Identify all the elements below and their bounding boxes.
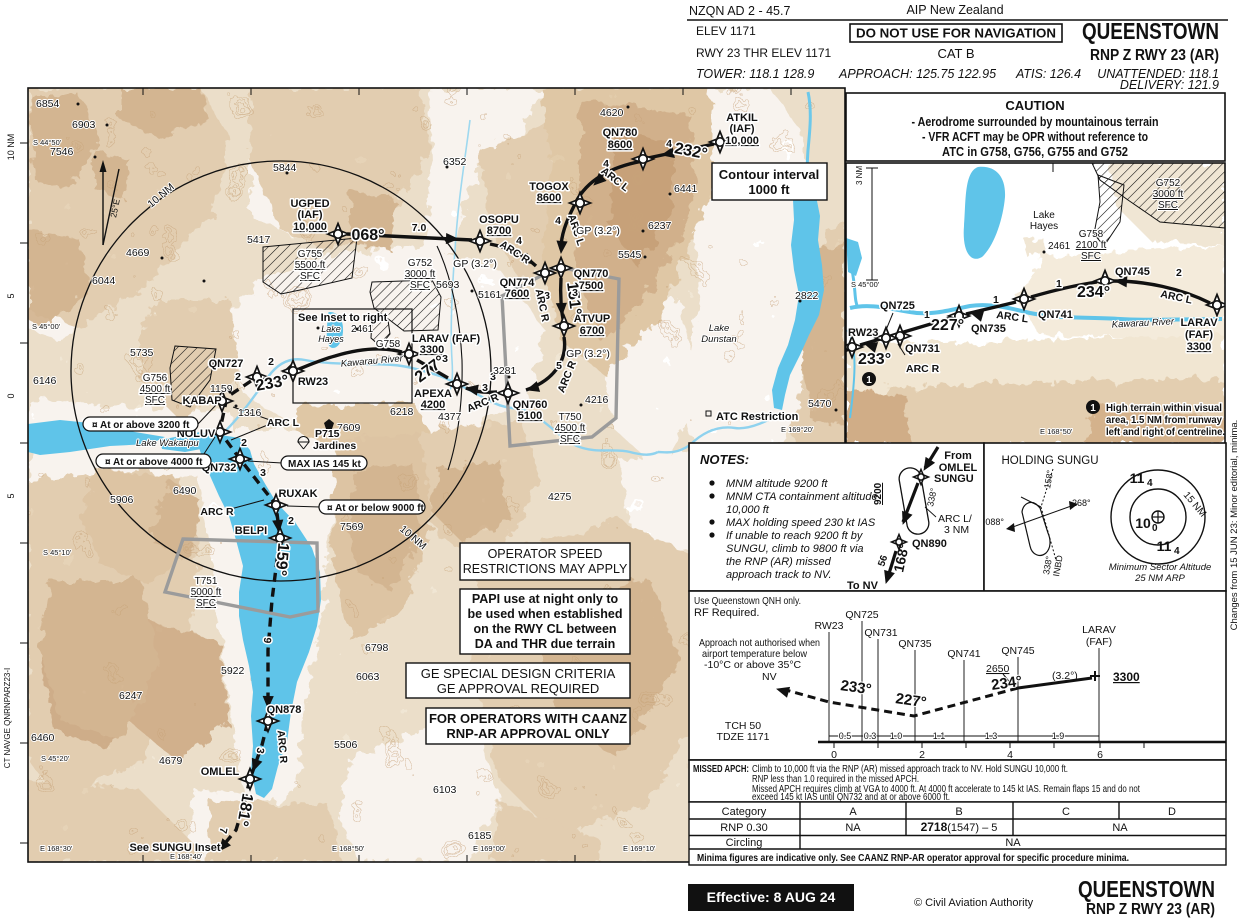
svg-text:SFC: SFC bbox=[145, 395, 165, 406]
svg-text:Effective: 8 AUG 24: Effective: 8 AUG 24 bbox=[707, 889, 836, 905]
svg-text:SFC: SFC bbox=[196, 598, 216, 609]
svg-text:5922: 5922 bbox=[221, 665, 245, 677]
svg-text:NA: NA bbox=[1112, 822, 1128, 834]
svg-text:High terrain within visual: High terrain within visual bbox=[1106, 403, 1222, 414]
svg-text:3: 3 bbox=[482, 382, 488, 394]
svg-text:(FAF): (FAF) bbox=[1086, 636, 1112, 648]
svg-text:NA: NA bbox=[845, 822, 861, 834]
svg-text:¤ At or above 3200 ft: ¤ At or above 3200 ft bbox=[92, 420, 190, 431]
svg-text:ARC R: ARC R bbox=[906, 363, 940, 375]
svg-text:6441: 6441 bbox=[674, 183, 698, 195]
svg-text:SFC: SFC bbox=[300, 271, 320, 282]
svg-text:ATVUP: ATVUP bbox=[574, 313, 610, 325]
svg-text:5470: 5470 bbox=[808, 398, 832, 410]
svg-text:E 169°20': E 169°20' bbox=[781, 425, 814, 434]
svg-text:QN735: QN735 bbox=[898, 638, 931, 650]
svg-text:ARC R: ARC R bbox=[200, 506, 234, 518]
svg-text:E 169°00': E 169°00' bbox=[473, 844, 506, 853]
svg-text:2461: 2461 bbox=[1048, 241, 1071, 252]
svg-text:234°: 234° bbox=[1077, 284, 1110, 301]
svg-text:1: 1 bbox=[1056, 278, 1062, 290]
svg-text:on the RWY CL between: on the RWY CL between bbox=[473, 622, 616, 636]
svg-text:RW23: RW23 bbox=[298, 376, 328, 388]
svg-text:227°: 227° bbox=[931, 317, 964, 334]
svg-text:6490: 6490 bbox=[173, 485, 197, 497]
svg-text:2: 2 bbox=[1176, 267, 1182, 279]
svg-text:6700: 6700 bbox=[580, 325, 604, 337]
svg-text:5417: 5417 bbox=[247, 234, 271, 246]
svg-text:QN745: QN745 bbox=[1001, 645, 1034, 657]
svg-text:GP (3.2°): GP (3.2°) bbox=[453, 258, 497, 270]
svg-text:Minima figures are indicative: Minima figures are indicative only. See … bbox=[697, 852, 1129, 864]
svg-text:MAX holding speed 230 kt IAS: MAX holding speed 230 kt IAS bbox=[726, 517, 876, 529]
svg-text:D: D bbox=[1168, 806, 1176, 818]
svg-text:6218: 6218 bbox=[390, 406, 414, 418]
svg-text:QN741: QN741 bbox=[1038, 309, 1073, 321]
svg-text:QN725: QN725 bbox=[880, 300, 915, 312]
svg-text:7600: 7600 bbox=[505, 288, 529, 300]
svg-text:P715: P715 bbox=[315, 428, 340, 440]
svg-text:1: 1 bbox=[1090, 403, 1096, 414]
svg-text:be used when established: be used when established bbox=[468, 607, 623, 621]
svg-text:1.1: 1.1 bbox=[933, 731, 946, 741]
svg-text:4500 ft: 4500 ft bbox=[140, 384, 171, 395]
svg-text:Lake: Lake bbox=[1033, 210, 1055, 221]
svg-text:T750: T750 bbox=[559, 412, 582, 423]
svg-text:SFC: SFC bbox=[410, 280, 430, 291]
svg-text:7.0: 7.0 bbox=[412, 222, 427, 234]
svg-text:the RNP (AR) missed: the RNP (AR) missed bbox=[726, 556, 832, 568]
svg-text:LARAV: LARAV bbox=[1180, 317, 1218, 329]
svg-text:8600: 8600 bbox=[537, 192, 561, 204]
svg-text:RF Required.: RF Required. bbox=[694, 607, 759, 619]
svg-text:approach track to NV.: approach track to NV. bbox=[726, 569, 832, 581]
svg-text:10 NM: 10 NM bbox=[6, 134, 16, 161]
svg-text:4275: 4275 bbox=[548, 491, 572, 503]
svg-text:ELEV 1171: ELEV 1171 bbox=[696, 24, 756, 38]
svg-text:1000 ft: 1000 ft bbox=[748, 182, 790, 197]
svg-text:GP (3.2°): GP (3.2°) bbox=[566, 348, 610, 360]
svg-text:AIP New Zealand: AIP New Zealand bbox=[906, 3, 1003, 17]
svg-text:5161: 5161 bbox=[478, 289, 502, 301]
svg-text:G758: G758 bbox=[1079, 229, 1104, 240]
svg-text:6185: 6185 bbox=[468, 830, 492, 842]
svg-text:6460: 6460 bbox=[31, 732, 55, 744]
svg-text:QN878: QN878 bbox=[267, 704, 302, 716]
svg-text:(3.2°): (3.2°) bbox=[1052, 670, 1078, 682]
svg-text:NV: NV bbox=[762, 671, 777, 683]
svg-text:MISSED APCH:: MISSED APCH: bbox=[693, 763, 749, 775]
svg-text:2461: 2461 bbox=[351, 324, 374, 335]
svg-text:SFC: SFC bbox=[560, 434, 580, 445]
svg-text:Hayes: Hayes bbox=[318, 334, 344, 344]
svg-text:10: 10 bbox=[1135, 515, 1151, 531]
svg-text:5000 ft: 5000 ft bbox=[191, 587, 222, 598]
svg-text:7546: 7546 bbox=[50, 146, 74, 158]
svg-text:RNP Z RWY 23 (AR): RNP Z RWY 23 (AR) bbox=[1086, 901, 1215, 918]
svg-text:10,000: 10,000 bbox=[725, 135, 759, 147]
svg-text:9: 9 bbox=[261, 637, 273, 644]
svg-text:(IAF): (IAF) bbox=[729, 123, 754, 135]
svg-text:4: 4 bbox=[1147, 478, 1153, 489]
svg-text:G755: G755 bbox=[298, 249, 323, 260]
svg-text:2100 ft: 2100 ft bbox=[1076, 240, 1107, 251]
svg-text:CAT B: CAT B bbox=[937, 46, 974, 61]
svg-text:QUEENSTOWN: QUEENSTOWN bbox=[1082, 18, 1219, 44]
svg-text:¤ At or below 9000 ft: ¤ At or below 9000 ft bbox=[327, 503, 425, 514]
svg-text:area, 1.5 NM from runway: area, 1.5 NM from runway bbox=[1106, 415, 1222, 426]
svg-text:FOR OPERATORS WITH CAANZ: FOR OPERATORS WITH CAANZ bbox=[429, 711, 627, 726]
svg-text:RESTRICTIONS MAY APPLY: RESTRICTIONS MAY APPLY bbox=[463, 562, 628, 576]
svg-text:Use Queenstown QNH only.: Use Queenstown QNH only. bbox=[694, 595, 801, 607]
svg-text:5500 ft: 5500 ft bbox=[295, 260, 326, 271]
svg-text:T751: T751 bbox=[195, 576, 218, 587]
svg-text:MNM altitude 9200 ft: MNM altitude 9200 ft bbox=[726, 478, 828, 490]
svg-text:MNM CTA containment altitude: MNM CTA containment altitude bbox=[726, 491, 878, 503]
svg-text:HOLDING SUNGU: HOLDING SUNGU bbox=[1001, 455, 1098, 467]
svg-text:1: 1 bbox=[993, 294, 999, 306]
svg-text:© Civil Aviation Authority: © Civil Aviation Authority bbox=[914, 897, 1034, 909]
svg-text:11: 11 bbox=[1130, 470, 1145, 486]
svg-text:RUXAK: RUXAK bbox=[278, 488, 317, 500]
svg-text:5693: 5693 bbox=[436, 279, 460, 291]
svg-text:4216: 4216 bbox=[585, 394, 609, 406]
svg-text:2718(1547) – 5: 2718(1547) – 5 bbox=[921, 820, 998, 834]
svg-text:Circling: Circling bbox=[726, 837, 763, 849]
svg-text:4: 4 bbox=[666, 138, 672, 150]
svg-text:From: From bbox=[944, 450, 972, 462]
svg-text:3281: 3281 bbox=[493, 365, 517, 377]
svg-text:0.5: 0.5 bbox=[839, 731, 852, 741]
svg-text:E 168°50': E 168°50' bbox=[1040, 427, 1073, 436]
svg-text:CT NAVGE QNRNPARZ23-I: CT NAVGE QNRNPARZ23-I bbox=[3, 668, 12, 768]
svg-text:6798: 6798 bbox=[365, 642, 389, 654]
svg-text:-10°C or above 35°C: -10°C or above 35°C bbox=[704, 659, 802, 671]
svg-text:Lake Wakatipu: Lake Wakatipu bbox=[136, 438, 199, 449]
svg-text:GP (3.2°): GP (3.2°) bbox=[576, 225, 620, 237]
svg-text:QN780: QN780 bbox=[603, 127, 638, 139]
svg-text:NA: NA bbox=[1005, 837, 1021, 849]
svg-text:DO NOT USE FOR NAVIGATION: DO NOT USE FOR NAVIGATION bbox=[856, 26, 1056, 41]
svg-text:Jardines: Jardines bbox=[313, 440, 356, 452]
svg-text:S 44°50': S 44°50' bbox=[33, 138, 62, 147]
svg-text:4: 4 bbox=[555, 215, 561, 227]
svg-text:4: 4 bbox=[1174, 546, 1180, 557]
svg-text:(FAF): (FAF) bbox=[1185, 329, 1213, 341]
svg-text:5: 5 bbox=[6, 293, 16, 298]
svg-text:Minimum Sector Altitude: Minimum Sector Altitude bbox=[1109, 562, 1212, 573]
svg-text:1.3: 1.3 bbox=[985, 731, 998, 741]
svg-text:QN741: QN741 bbox=[947, 648, 980, 660]
svg-text:Dunstan: Dunstan bbox=[701, 334, 736, 345]
svg-text:3000 ft: 3000 ft bbox=[405, 269, 436, 280]
svg-text:DA and THR due terrain: DA and THR due terrain bbox=[475, 637, 616, 651]
svg-text:3: 3 bbox=[260, 467, 266, 479]
svg-text:TDZE 1171: TDZE 1171 bbox=[717, 731, 770, 743]
svg-text:3: 3 bbox=[572, 287, 578, 299]
svg-text:QN731: QN731 bbox=[864, 627, 897, 639]
svg-text:GE APPROVAL REQUIRED: GE APPROVAL REQUIRED bbox=[437, 681, 600, 696]
svg-text:ATC Restriction: ATC Restriction bbox=[716, 411, 799, 423]
svg-text:Lake: Lake bbox=[709, 323, 730, 334]
svg-text:LARAV: LARAV bbox=[1082, 624, 1116, 636]
svg-text:ATIS: 126.4: ATIS: 126.4 bbox=[1015, 67, 1081, 81]
svg-text:QN725: QN725 bbox=[845, 609, 878, 621]
svg-text:S 45°10': S 45°10' bbox=[43, 548, 72, 557]
svg-text:GE SPECIAL DESIGN CRITERIA: GE SPECIAL DESIGN CRITERIA bbox=[421, 666, 616, 681]
svg-text:SUNGU, climb to 9800 ft via: SUNGU, climb to 9800 ft via bbox=[726, 543, 864, 555]
svg-text:6854: 6854 bbox=[36, 98, 60, 110]
svg-text:6247: 6247 bbox=[119, 690, 143, 702]
svg-text:RW23: RW23 bbox=[848, 327, 878, 339]
svg-text:4500 ft: 4500 ft bbox=[555, 423, 586, 434]
svg-text:E 168°50': E 168°50' bbox=[332, 844, 365, 853]
svg-text:0: 0 bbox=[1152, 523, 1158, 534]
svg-text:ARC L: ARC L bbox=[267, 417, 300, 429]
svg-text:4679: 4679 bbox=[159, 755, 183, 767]
svg-text:0.3: 0.3 bbox=[864, 731, 877, 741]
svg-text:SUNGU: SUNGU bbox=[934, 473, 974, 485]
svg-text:1.9: 1.9 bbox=[1052, 731, 1065, 741]
svg-text:If unable to reach 9200 ft by: If unable to reach 9200 ft by bbox=[726, 530, 864, 542]
svg-text:2: 2 bbox=[288, 515, 294, 527]
svg-text:- VFR ACFT may be OPR without: - VFR ACFT may be OPR without reference … bbox=[922, 130, 1148, 144]
svg-text:QN745: QN745 bbox=[1115, 266, 1150, 278]
svg-text:3 NM: 3 NM bbox=[855, 166, 864, 185]
svg-text:S 45°20': S 45°20' bbox=[41, 754, 70, 763]
svg-text:8600: 8600 bbox=[608, 139, 632, 151]
svg-text:2: 2 bbox=[235, 371, 241, 383]
svg-text:See Inset to right: See Inset to right bbox=[298, 312, 388, 324]
svg-text:1316: 1316 bbox=[238, 407, 262, 419]
svg-text:Contour interval: Contour interval bbox=[719, 167, 819, 182]
svg-text:SFC: SFC bbox=[1081, 251, 1101, 262]
svg-text:4: 4 bbox=[516, 235, 522, 247]
svg-text:9200: 9200 bbox=[873, 482, 884, 505]
svg-text:4669: 4669 bbox=[126, 247, 150, 259]
svg-text:7609: 7609 bbox=[337, 422, 361, 434]
svg-text:Changes from 15 JUN 23: Minor: Changes from 15 JUN 23: Minor editorial,… bbox=[1229, 420, 1240, 631]
svg-text:11: 11 bbox=[1157, 538, 1172, 554]
svg-text:1: 1 bbox=[924, 309, 930, 321]
svg-text:0: 0 bbox=[6, 393, 16, 398]
svg-text:6146: 6146 bbox=[33, 375, 57, 387]
svg-text:KABAP: KABAP bbox=[182, 395, 221, 407]
svg-text:25 NM ARP: 25 NM ARP bbox=[1134, 573, 1185, 584]
svg-text:E 168°40': E 168°40' bbox=[170, 852, 203, 861]
svg-text:TOWER: 118.1 128.9: TOWER: 118.1 128.9 bbox=[696, 67, 814, 81]
svg-text:G758: G758 bbox=[376, 339, 401, 350]
svg-text:4620: 4620 bbox=[600, 107, 624, 119]
svg-text:5735: 5735 bbox=[130, 347, 154, 359]
svg-text:APPROACH: 125.75 122.95: APPROACH: 125.75 122.95 bbox=[838, 67, 996, 81]
svg-text:6903: 6903 bbox=[72, 119, 96, 131]
svg-text:Hayes: Hayes bbox=[1030, 221, 1058, 232]
svg-text:2: 2 bbox=[241, 437, 247, 449]
svg-text:PAPI use at night only to: PAPI use at night only to bbox=[472, 592, 619, 606]
svg-text:¤ At or above 4000 ft: ¤ At or above 4000 ft bbox=[105, 457, 203, 468]
svg-text:159°: 159° bbox=[272, 542, 292, 576]
svg-text:A: A bbox=[849, 806, 857, 818]
svg-text:QN735: QN735 bbox=[971, 323, 1006, 335]
svg-text:3 NM: 3 NM bbox=[944, 524, 969, 536]
svg-text:3300: 3300 bbox=[1187, 341, 1211, 353]
svg-text:QN770: QN770 bbox=[574, 268, 609, 280]
svg-text:Category: Category bbox=[722, 806, 767, 818]
svg-text:6103: 6103 bbox=[433, 784, 457, 796]
svg-text:6044: 6044 bbox=[92, 275, 116, 287]
svg-text:5506: 5506 bbox=[334, 739, 358, 751]
svg-text:BELPI: BELPI bbox=[235, 525, 267, 537]
svg-text:7500: 7500 bbox=[579, 280, 603, 292]
svg-text:NOTES:: NOTES: bbox=[700, 452, 749, 467]
svg-text:3: 3 bbox=[442, 353, 448, 365]
svg-text:088°: 088° bbox=[985, 517, 1004, 527]
svg-text:DELIVERY: 121.9: DELIVERY: 121.9 bbox=[1120, 78, 1219, 92]
svg-text:233°: 233° bbox=[858, 351, 891, 368]
svg-text:G756: G756 bbox=[143, 373, 168, 384]
svg-text:E 168°30': E 168°30' bbox=[40, 844, 73, 853]
svg-text:RW23: RW23 bbox=[815, 620, 844, 632]
svg-text:MAX IAS 145 kt: MAX IAS 145 kt bbox=[288, 459, 361, 470]
svg-text:10,000: 10,000 bbox=[293, 221, 327, 233]
svg-text:7569: 7569 bbox=[340, 521, 364, 533]
svg-text:QN727: QN727 bbox=[209, 358, 244, 370]
svg-text:RNP Z RWY 23 (AR): RNP Z RWY 23 (AR) bbox=[1090, 47, 1219, 64]
svg-text:S 45°00': S 45°00' bbox=[851, 280, 880, 289]
svg-text:RNP-AR APPROVAL ONLY: RNP-AR APPROVAL ONLY bbox=[446, 726, 610, 741]
svg-text:ATC in G758, G756, G755 and G7: ATC in G758, G756, G755 and G752 bbox=[942, 145, 1128, 159]
svg-text:10,000 ft: 10,000 ft bbox=[726, 504, 770, 516]
svg-text:3300: 3300 bbox=[420, 344, 444, 356]
svg-text:G752: G752 bbox=[408, 258, 433, 269]
svg-text:1: 1 bbox=[866, 375, 872, 386]
svg-text:5100: 5100 bbox=[518, 410, 542, 422]
svg-text:- Aerodrome surrounded by moun: - Aerodrome surrounded by mountainous te… bbox=[912, 115, 1159, 129]
svg-text:2: 2 bbox=[268, 356, 274, 368]
svg-text:5545: 5545 bbox=[618, 249, 642, 261]
svg-text:RWY 23 THR ELEV 1171: RWY 23 THR ELEV 1171 bbox=[696, 46, 832, 60]
svg-text:5906: 5906 bbox=[110, 494, 134, 506]
svg-text:OPERATOR SPEED: OPERATOR SPEED bbox=[488, 547, 603, 561]
svg-text:SFC: SFC bbox=[1158, 200, 1178, 211]
svg-text:5: 5 bbox=[6, 493, 16, 498]
svg-text:268°: 268° bbox=[1072, 498, 1091, 508]
svg-text:G752: G752 bbox=[1156, 178, 1181, 189]
svg-text:068°: 068° bbox=[351, 227, 384, 244]
svg-text:8700: 8700 bbox=[487, 225, 511, 237]
svg-text:6237: 6237 bbox=[648, 220, 672, 232]
svg-text:5: 5 bbox=[556, 360, 562, 372]
svg-text:QN731: QN731 bbox=[905, 343, 940, 355]
svg-text:CAUTION: CAUTION bbox=[1005, 98, 1064, 113]
svg-text:QN890: QN890 bbox=[912, 538, 947, 550]
svg-text:Lake: Lake bbox=[321, 324, 341, 334]
svg-text:4200: 4200 bbox=[421, 399, 445, 411]
svg-text:2822: 2822 bbox=[795, 290, 819, 302]
svg-text:6063: 6063 bbox=[356, 671, 380, 683]
svg-text:left and right of centreline.: left and right of centreline. bbox=[1106, 427, 1225, 438]
svg-text:2650: 2650 bbox=[986, 663, 1010, 675]
svg-text:5844: 5844 bbox=[273, 162, 297, 174]
svg-text:RNP 0.30: RNP 0.30 bbox=[720, 822, 768, 834]
svg-text:NZQN AD 2 - 45.7: NZQN AD 2 - 45.7 bbox=[689, 4, 790, 18]
svg-text:S 45°00': S 45°00' bbox=[32, 322, 61, 331]
svg-text:1.0: 1.0 bbox=[890, 731, 903, 741]
svg-text:3000 ft: 3000 ft bbox=[1153, 189, 1184, 200]
svg-text:(IAF): (IAF) bbox=[297, 209, 322, 221]
svg-text:B: B bbox=[955, 806, 962, 818]
svg-text:E 169°10': E 169°10' bbox=[623, 844, 656, 853]
svg-text:QUEENSTOWN: QUEENSTOWN bbox=[1078, 876, 1215, 902]
svg-text:OMLEL: OMLEL bbox=[201, 766, 240, 778]
svg-text:4377: 4377 bbox=[438, 411, 462, 423]
svg-text:3300: 3300 bbox=[1113, 670, 1140, 684]
svg-text:C: C bbox=[1062, 806, 1070, 818]
